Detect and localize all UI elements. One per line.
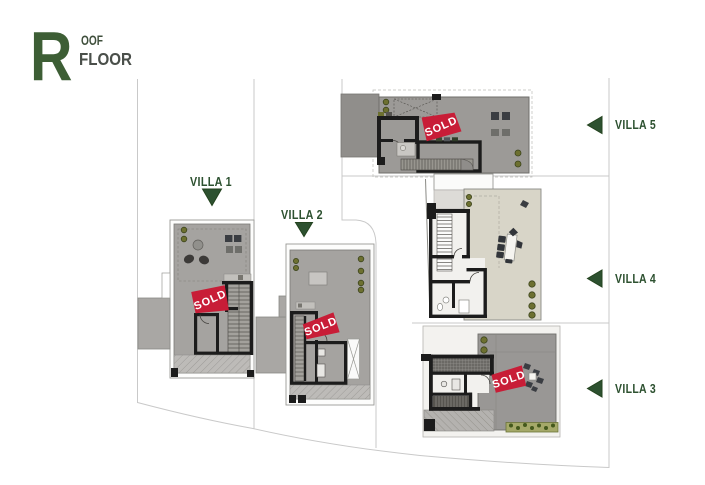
svg-text:VILLA 4: VILLA 4 <box>615 272 656 286</box>
svg-text:VILLA 3: VILLA 3 <box>615 382 656 396</box>
svg-text:VILLA 5: VILLA 5 <box>615 118 656 132</box>
svg-text:FLOOR: FLOOR <box>79 49 132 69</box>
svg-text:R: R <box>30 16 72 95</box>
svg-text:OOF: OOF <box>81 32 103 48</box>
svg-text:VILLA 1: VILLA 1 <box>190 175 232 189</box>
svg-text:VILLA 2: VILLA 2 <box>281 208 323 222</box>
